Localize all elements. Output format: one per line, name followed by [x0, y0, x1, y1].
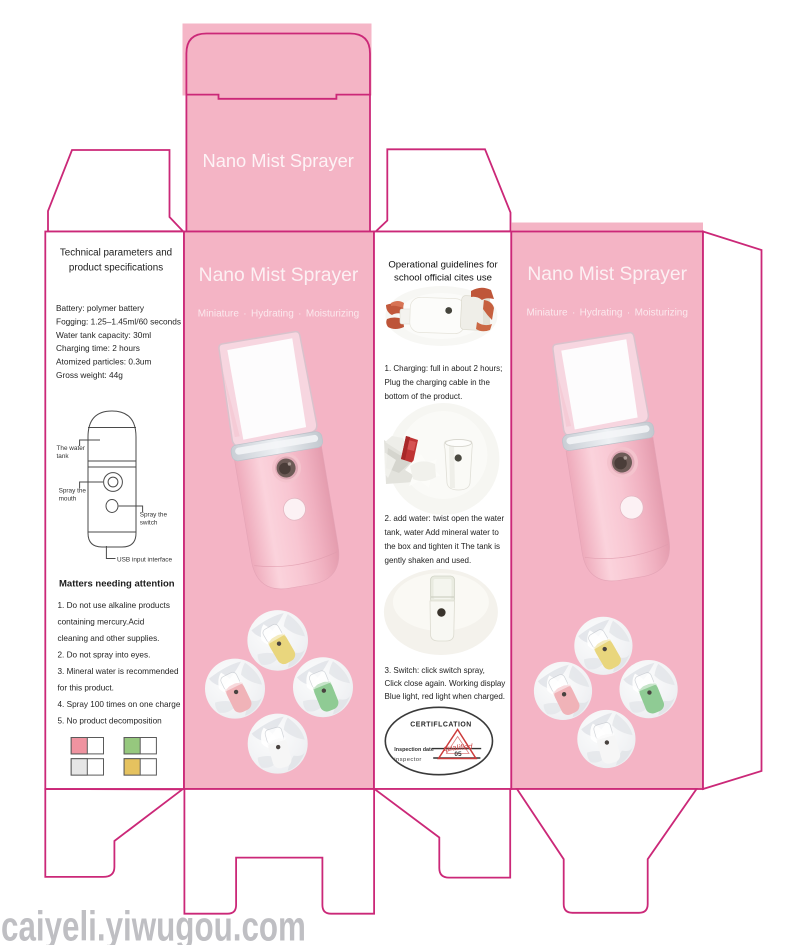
svg-text:The water: The water: [57, 445, 86, 452]
svg-text:bottom of the product.: bottom of the product.: [385, 392, 463, 401]
svg-text:Click close again. Working dis: Click close again. Working display: [385, 679, 506, 688]
svg-text:Nano Mist Sprayer: Nano Mist Sprayer: [203, 150, 354, 171]
svg-text:mouth: mouth: [59, 496, 77, 503]
svg-text:Atomized particles: 0.3um: Atomized particles: 0.3um: [56, 357, 152, 367]
svg-text:Technical parameters and: Technical parameters and: [60, 248, 172, 259]
svg-text:Nano Mist Sprayer: Nano Mist Sprayer: [199, 265, 359, 286]
svg-text:Gross weight: 44g: Gross weight: 44g: [56, 370, 123, 380]
svg-text:for this product.: for this product.: [58, 684, 114, 693]
svg-text:Inspection date: Inspection date: [394, 747, 434, 753]
svg-text:Miniature · Hydrating · Moistu: Miniature · Hydrating · Moisturizing: [198, 309, 359, 320]
svg-text:cleaning and other supplies.: cleaning and other supplies.: [58, 634, 160, 643]
svg-text:switch: switch: [140, 520, 158, 527]
svg-text:1. Charging: full in about 2 h: 1. Charging: full in about 2 hours;: [385, 364, 503, 373]
svg-text:Spray the: Spray the: [59, 488, 87, 495]
svg-text:Charging time: 2 hours: Charging time: 2 hours: [56, 343, 140, 353]
svg-text:5. No product decomposition: 5. No product decomposition: [58, 717, 163, 726]
svg-text:caiyeli.yiwugou.com: caiyeli.yiwugou.com: [1, 902, 306, 945]
svg-text:school official cites use: school official cites use: [394, 273, 492, 284]
svg-text:tank, water Add mineral water: tank, water Add mineral water to: [385, 528, 500, 537]
svg-text:Water tank capacity: 30ml: Water tank capacity: 30ml: [56, 330, 151, 340]
svg-text:inspector: inspector: [394, 757, 422, 763]
svg-text:tank: tank: [57, 453, 70, 460]
svg-text:Spray the: Spray the: [140, 512, 168, 519]
svg-text:Plug the charging cable in the: Plug the charging cable in the: [385, 378, 491, 387]
svg-text:Nano Mist Sprayer: Nano Mist Sprayer: [527, 264, 687, 285]
svg-text:gently shaken and used.: gently shaken and used.: [385, 556, 472, 565]
svg-text:CERTIFLCATION: CERTIFLCATION: [410, 722, 472, 729]
svg-text:Fogging: 1.25–1.45ml/60 second: Fogging: 1.25–1.45ml/60 seconds: [56, 316, 181, 326]
svg-text:the box and tighten it The tan: the box and tighten it The tank is: [385, 542, 500, 551]
svg-text:1. Do not use alkaline product: 1. Do not use alkaline products: [58, 601, 170, 610]
svg-text:product specifications: product specifications: [69, 263, 163, 274]
svg-text:Operational guidelines for: Operational guidelines for: [388, 260, 498, 271]
svg-text:Miniature · Hydrating · Moistu: Miniature · Hydrating · Moisturizing: [526, 308, 687, 319]
svg-text:USB input interface: USB input interface: [117, 557, 173, 564]
svg-text:3. Mineral water is recommende: 3. Mineral water is recommended: [58, 667, 179, 676]
svg-text:3. Switch: click switch spray,: 3. Switch: click switch spray,: [385, 666, 485, 675]
svg-text:2. Do not spray into eyes.: 2. Do not spray into eyes.: [58, 651, 151, 660]
svg-text:2. add water: twist open the w: 2. add water: twist open the water: [385, 514, 505, 523]
svg-text:containing mercury.Acid: containing mercury.Acid: [58, 618, 145, 627]
svg-text:Blue light, red light when cha: Blue light, red light when charged.: [385, 692, 506, 701]
svg-text:Battery: polymer battery: Battery: polymer battery: [56, 303, 145, 313]
svg-text:4. Spray 100 times on one char: 4. Spray 100 times on one charge: [58, 700, 181, 709]
svg-text:Matters needing attention: Matters needing attention: [59, 579, 175, 590]
